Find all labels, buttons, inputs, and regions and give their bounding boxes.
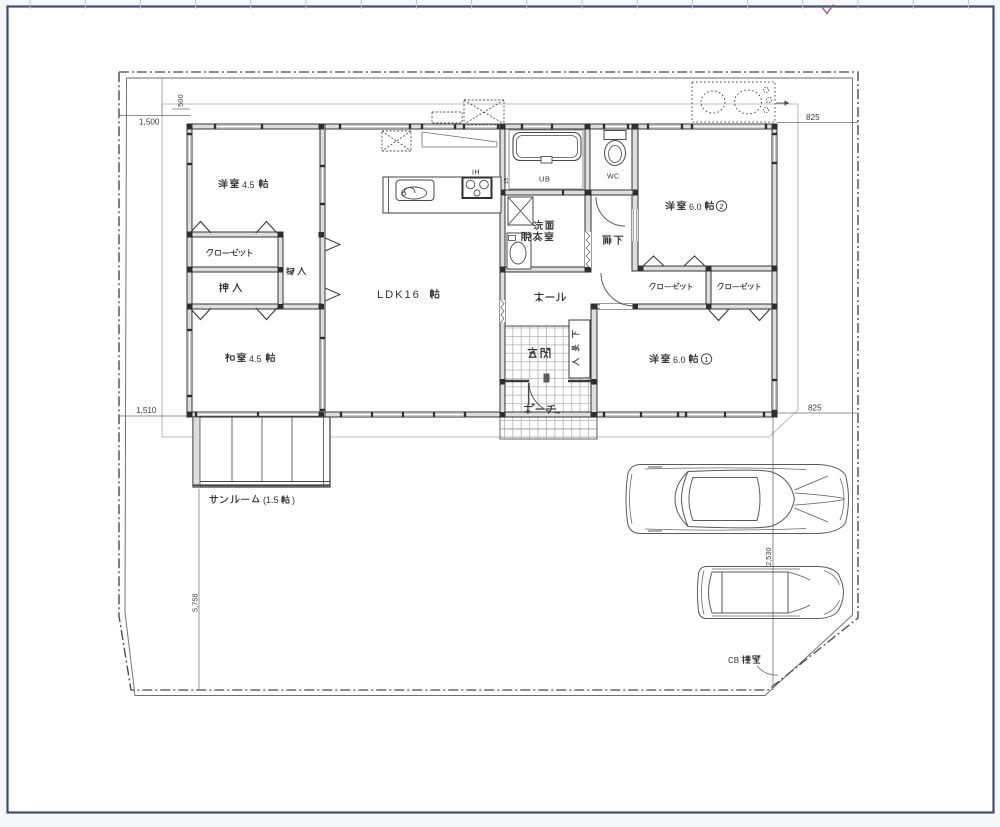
svg-text:500: 500 (176, 94, 185, 107)
svg-text:5,758: 5,758 (191, 594, 200, 613)
svg-text:CB: CB (728, 656, 739, 665)
svg-text:LDK16: LDK16 (377, 289, 421, 301)
svg-text:825: 825 (808, 404, 822, 413)
svg-text:): ) (292, 495, 295, 505)
svg-text:UB: UB (539, 175, 550, 184)
svg-text:2: 2 (719, 202, 723, 211)
svg-text:1: 1 (704, 355, 708, 364)
svg-text:6.0: 6.0 (673, 355, 686, 365)
svg-text:2,530: 2,530 (764, 548, 773, 567)
svg-text:1,500: 1,500 (139, 118, 160, 127)
svg-text:(1.5: (1.5 (263, 495, 279, 505)
svg-text:825: 825 (806, 113, 820, 122)
svg-text:IH: IH (472, 170, 480, 177)
svg-text:WC: WC (607, 174, 619, 181)
svg-text:4.5: 4.5 (249, 354, 262, 364)
svg-text:4.5: 4.5 (242, 180, 255, 190)
svg-text:1,510: 1,510 (136, 406, 157, 415)
svg-text:6.0: 6.0 (689, 202, 702, 212)
svg-text:15: 15 (504, 178, 510, 184)
